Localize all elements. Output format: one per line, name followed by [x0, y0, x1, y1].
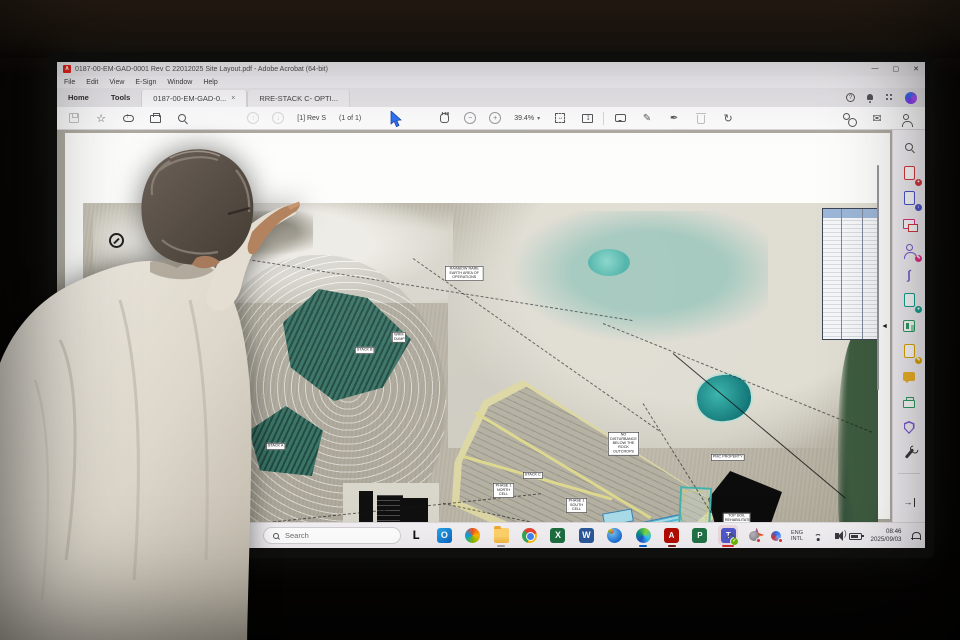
- zoom-level-dropdown[interactable]: 39.4% ▾: [514, 115, 540, 122]
- tray-app-1-icon[interactable]: [747, 523, 761, 548]
- window-title: 0187-00-EM-GAD-0001 Rev C 22012025 Site …: [75, 66, 328, 73]
- windows-taskbar: Search L O X W A P T: [57, 522, 925, 548]
- notifications-bell-icon[interactable]: [866, 94, 874, 102]
- map-label-phase1-south: PHASE 1 SOUTH CELL: [566, 498, 587, 513]
- create-pdf-icon[interactable]: +: [899, 163, 919, 183]
- protect-pdf-icon[interactable]: [899, 418, 919, 438]
- tab-tools[interactable]: Tools: [100, 88, 141, 107]
- pencil-tool-button[interactable]: ✎: [640, 111, 654, 125]
- map-label-stack-c: STACK C: [523, 472, 543, 479]
- map-label-wrm-dump: WRM DUMP: [392, 332, 406, 343]
- speaker-icon[interactable]: [829, 523, 845, 548]
- export-pdf-icon[interactable]: ↓: [899, 188, 919, 208]
- room-ceiling: [0, 0, 960, 58]
- tools-panel: + ↓ ✎ ʃ ● ✎ →: [892, 130, 925, 522]
- zoom-out-button[interactable]: −: [464, 112, 476, 124]
- system-tray: ENG INTL 08:46 2025/09/03: [57, 523, 925, 548]
- map-label-rock-outcrops: NO DISTURBANCE BELOW THE ROCK OUTCROPS: [608, 432, 639, 455]
- request-signatures-icon[interactable]: ✎: [899, 239, 919, 259]
- menu-help[interactable]: Help: [203, 79, 217, 86]
- tray-date: 2025/09/03: [871, 536, 902, 544]
- find-button[interactable]: [175, 111, 189, 125]
- save-button[interactable]: [67, 111, 81, 125]
- notification-center-bell-icon[interactable]: [909, 523, 921, 548]
- zoom-in-button[interactable]: +: [489, 112, 501, 124]
- select-tool-spacer: [414, 111, 424, 125]
- tray-overflow-chevron-icon[interactable]: [725, 523, 739, 548]
- menu-edit[interactable]: Edit: [86, 79, 98, 86]
- tab-document-1-close-icon[interactable]: ×: [231, 95, 235, 102]
- clock-date[interactable]: 08:46 2025/09/03: [865, 523, 907, 548]
- share-person-icon[interactable]: [899, 111, 913, 125]
- comment-tool-icon[interactable]: [899, 367, 919, 387]
- maximize-button[interactable]: ▢: [893, 65, 900, 73]
- coordinate-table: [822, 208, 878, 340]
- title-bar: A 0187-00-EM-GAD-0001 Rev C 22012025 Sit…: [57, 62, 925, 76]
- tray-time: 08:46: [871, 528, 902, 536]
- compress-pdf-icon[interactable]: ●: [899, 290, 919, 310]
- tab-document-2-label: RRE-STACK C- OPTI...: [259, 94, 338, 103]
- search-tool-icon[interactable]: [899, 137, 919, 157]
- menu-bar: File Edit View E-Sign Window Help: [57, 76, 925, 88]
- previous-page-button[interactable]: ↑: [247, 112, 259, 124]
- help-icon[interactable]: ?: [846, 93, 855, 102]
- menu-window[interactable]: Window: [167, 79, 192, 86]
- tab-document-1[interactable]: 0187-00-EM-GAD-0... ×: [141, 90, 247, 107]
- map-label-area-of-operations: RAINBOW RARE EARTH AREA OF OPERATIONS: [445, 266, 483, 281]
- map-terrain-west: [83, 281, 211, 548]
- fill-and-sign-icon[interactable]: ʃ: [899, 265, 919, 285]
- next-page-button[interactable]: ↓: [272, 112, 284, 124]
- map-label-stack-a: STACK A: [266, 443, 285, 450]
- rotate-tool-button[interactable]: ↻: [721, 111, 735, 125]
- comment-tool-button[interactable]: [613, 111, 627, 125]
- document-area: RAINBOW RARE EARTH AREA OF OPERATIONS ST…: [57, 130, 892, 522]
- north-arrow-icon: [109, 233, 124, 248]
- acrobat-window: A 0187-00-EM-GAD-0001 Rev C 22012025 Sit…: [57, 62, 925, 548]
- close-button[interactable]: ✕: [913, 65, 919, 73]
- language-line-2: INTL: [791, 536, 803, 542]
- site-layout-map[interactable]: RAINBOW RARE EARTH AREA OF OPERATIONS ST…: [83, 203, 878, 548]
- print-production-icon[interactable]: [899, 392, 919, 412]
- map-label-phase1-north: PHASE 1 NORTH CELL: [493, 483, 514, 498]
- map-label-pmc-property: PMC PROPERTY: [711, 454, 744, 461]
- tab-bar: Home Tools 0187-00-EM-GAD-0... × RRE-STA…: [57, 88, 925, 107]
- map-vegetation-east: [838, 331, 878, 548]
- wifi-icon[interactable]: [811, 523, 825, 548]
- menu-view[interactable]: View: [109, 79, 124, 86]
- tab-home[interactable]: Home: [57, 88, 100, 107]
- organize-pages-icon[interactable]: [899, 214, 919, 234]
- share-link-icon[interactable]: [841, 111, 855, 125]
- menu-esign[interactable]: E-Sign: [135, 79, 156, 86]
- mouse-cursor: [390, 111, 403, 128]
- collapse-panel-icon[interactable]: →: [899, 492, 919, 512]
- hand-tool-button[interactable]: [437, 111, 451, 125]
- panel-collapse-arrow-icon[interactable]: ◄: [881, 323, 888, 330]
- page-count: (1 of 1): [339, 115, 361, 122]
- zoom-level-value: 39.4%: [514, 115, 534, 122]
- combine-files-icon[interactable]: [899, 316, 919, 336]
- acrobat-app-icon: A: [63, 65, 71, 73]
- page-indicator[interactable]: [1] Rev S: [297, 115, 326, 122]
- tray-app-2-icon[interactable]: [769, 523, 783, 548]
- map-pond-small: [588, 249, 630, 276]
- profile-avatar[interactable]: [905, 92, 917, 104]
- map-label-stack-b: STACK B: [355, 347, 374, 354]
- minimize-button[interactable]: —: [872, 65, 879, 73]
- language-indicator[interactable]: ENG INTL: [787, 523, 807, 548]
- acrobat-toolbar: ☆ ↑ ↓ [1] Rev S (1 of 1) − + 39.4% ▾: [57, 107, 925, 130]
- email-icon[interactable]: ✉: [870, 111, 884, 125]
- delete-tool-button[interactable]: [694, 111, 708, 125]
- menu-file[interactable]: File: [64, 79, 75, 86]
- tab-document-1-label: 0187-00-EM-GAD-0...: [153, 94, 226, 103]
- print-button[interactable]: [148, 111, 162, 125]
- tab-document-2[interactable]: RRE-STACK C- OPTI...: [247, 90, 350, 107]
- edit-pdf-icon[interactable]: ✎: [899, 341, 919, 361]
- zoom-caret-icon: ▾: [537, 115, 540, 122]
- more-tools-icon[interactable]: [899, 443, 919, 463]
- apps-grid-icon[interactable]: [885, 93, 894, 102]
- fit-page-button[interactable]: [553, 111, 567, 125]
- document-scrollbar[interactable]: [877, 165, 879, 390]
- fit-width-button[interactable]: [580, 111, 594, 125]
- share-upload-button[interactable]: [121, 111, 135, 125]
- star-favorite-button[interactable]: ☆: [94, 111, 108, 125]
- sign-tool-button[interactable]: ✒: [667, 111, 681, 125]
- photo-background: A 0187-00-EM-GAD-0001 Rev C 22012025 Sit…: [0, 0, 960, 640]
- battery-icon[interactable]: [847, 523, 863, 548]
